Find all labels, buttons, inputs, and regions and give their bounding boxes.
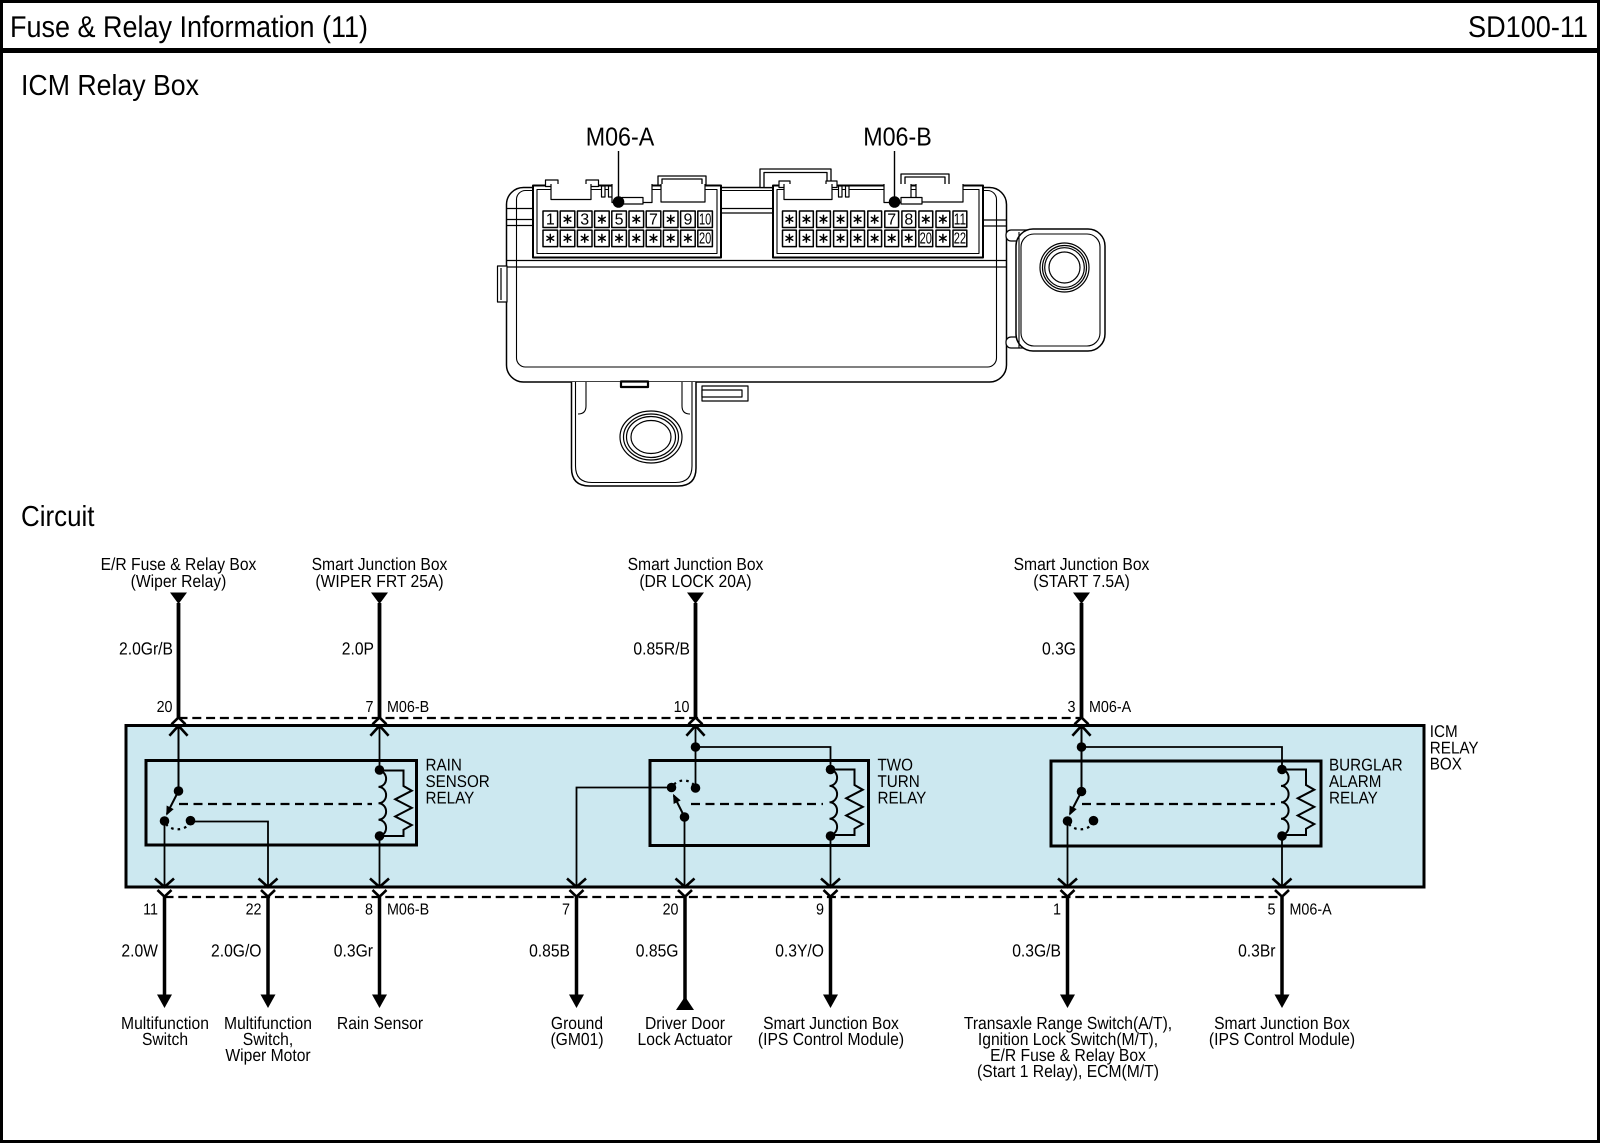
svg-text:(IPS Control Module): (IPS Control Module) <box>1209 1029 1355 1049</box>
svg-text:RELAY: RELAY <box>426 788 475 807</box>
svg-text:0.3Gr: 0.3Gr <box>334 941 373 961</box>
svg-text:20: 20 <box>663 902 679 919</box>
svg-text:7: 7 <box>887 211 896 228</box>
svg-text:M06-B: M06-B <box>387 699 429 716</box>
svg-text:M06-B: M06-B <box>863 122 932 152</box>
svg-text:1: 1 <box>546 211 555 228</box>
svg-text:2.0Gr/B: 2.0Gr/B <box>119 639 173 659</box>
svg-text:22: 22 <box>954 231 966 248</box>
svg-text:0.85G: 0.85G <box>636 941 679 961</box>
svg-text:Wiper Motor: Wiper Motor <box>225 1045 310 1065</box>
svg-text:10: 10 <box>674 699 690 716</box>
svg-text:0.3Br: 0.3Br <box>1238 941 1276 961</box>
svg-text:M06-A: M06-A <box>586 122 655 152</box>
svg-text:M06-A: M06-A <box>1089 699 1131 716</box>
svg-text:10: 10 <box>699 211 711 228</box>
svg-text:BOX: BOX <box>1430 755 1462 774</box>
svg-text:7: 7 <box>649 211 658 228</box>
svg-text:20: 20 <box>157 699 173 716</box>
svg-text:(IPS Control Module): (IPS Control Module) <box>758 1029 904 1049</box>
svg-text:M06-A: M06-A <box>1290 902 1332 919</box>
svg-text:0.3Y/O: 0.3Y/O <box>775 941 824 961</box>
svg-text:(GM01): (GM01) <box>550 1029 603 1049</box>
svg-text:5: 5 <box>615 211 624 228</box>
svg-text:(WIPER FRT 25A): (WIPER FRT 25A) <box>315 571 443 591</box>
svg-text:11: 11 <box>143 902 158 919</box>
svg-text:(Wiper Relay): (Wiper Relay) <box>131 571 227 591</box>
svg-text:ICM Relay Box: ICM Relay Box <box>21 70 199 102</box>
svg-text:8: 8 <box>365 902 373 919</box>
svg-text:SD100-11: SD100-11 <box>1468 11 1588 44</box>
svg-text:5: 5 <box>1268 902 1276 919</box>
svg-text:3: 3 <box>580 211 589 228</box>
svg-text:Lock Actuator: Lock Actuator <box>638 1029 733 1049</box>
svg-text:RELAY: RELAY <box>878 788 927 807</box>
svg-text:9: 9 <box>816 902 824 919</box>
svg-text:1: 1 <box>1053 902 1061 919</box>
svg-text:20: 20 <box>699 231 711 248</box>
svg-text:8: 8 <box>904 211 913 228</box>
svg-text:20: 20 <box>920 231 932 248</box>
svg-text:22: 22 <box>246 902 262 919</box>
svg-text:0.85R/B: 0.85R/B <box>633 639 690 659</box>
svg-text:11: 11 <box>954 211 966 228</box>
svg-text:7: 7 <box>366 699 374 716</box>
svg-text:Rain Sensor: Rain Sensor <box>337 1013 423 1033</box>
svg-text:(Start 1 Relay), ECM(M/T): (Start 1 Relay), ECM(M/T) <box>977 1061 1159 1081</box>
svg-text:Circuit: Circuit <box>21 501 95 533</box>
svg-text:Switch: Switch <box>142 1029 188 1049</box>
svg-text:(DR LOCK 20A): (DR LOCK 20A) <box>639 571 751 591</box>
svg-text:7: 7 <box>562 902 570 919</box>
svg-text:0.3G: 0.3G <box>1042 639 1076 659</box>
svg-text:2.0G/O: 2.0G/O <box>211 941 262 961</box>
svg-text:0.3G/B: 0.3G/B <box>1012 941 1061 961</box>
svg-text:2.0P: 2.0P <box>342 639 374 659</box>
svg-text:9: 9 <box>683 211 692 228</box>
svg-text:RELAY: RELAY <box>1329 788 1378 807</box>
svg-text:0.85B: 0.85B <box>529 941 570 961</box>
svg-text:2.0W: 2.0W <box>121 941 158 961</box>
svg-text:Fuse & Relay Information (11): Fuse & Relay Information (11) <box>10 11 368 44</box>
svg-text:3: 3 <box>1068 699 1076 716</box>
svg-text:M06-B: M06-B <box>387 902 429 919</box>
svg-text:(START 7.5A): (START 7.5A) <box>1033 571 1130 591</box>
